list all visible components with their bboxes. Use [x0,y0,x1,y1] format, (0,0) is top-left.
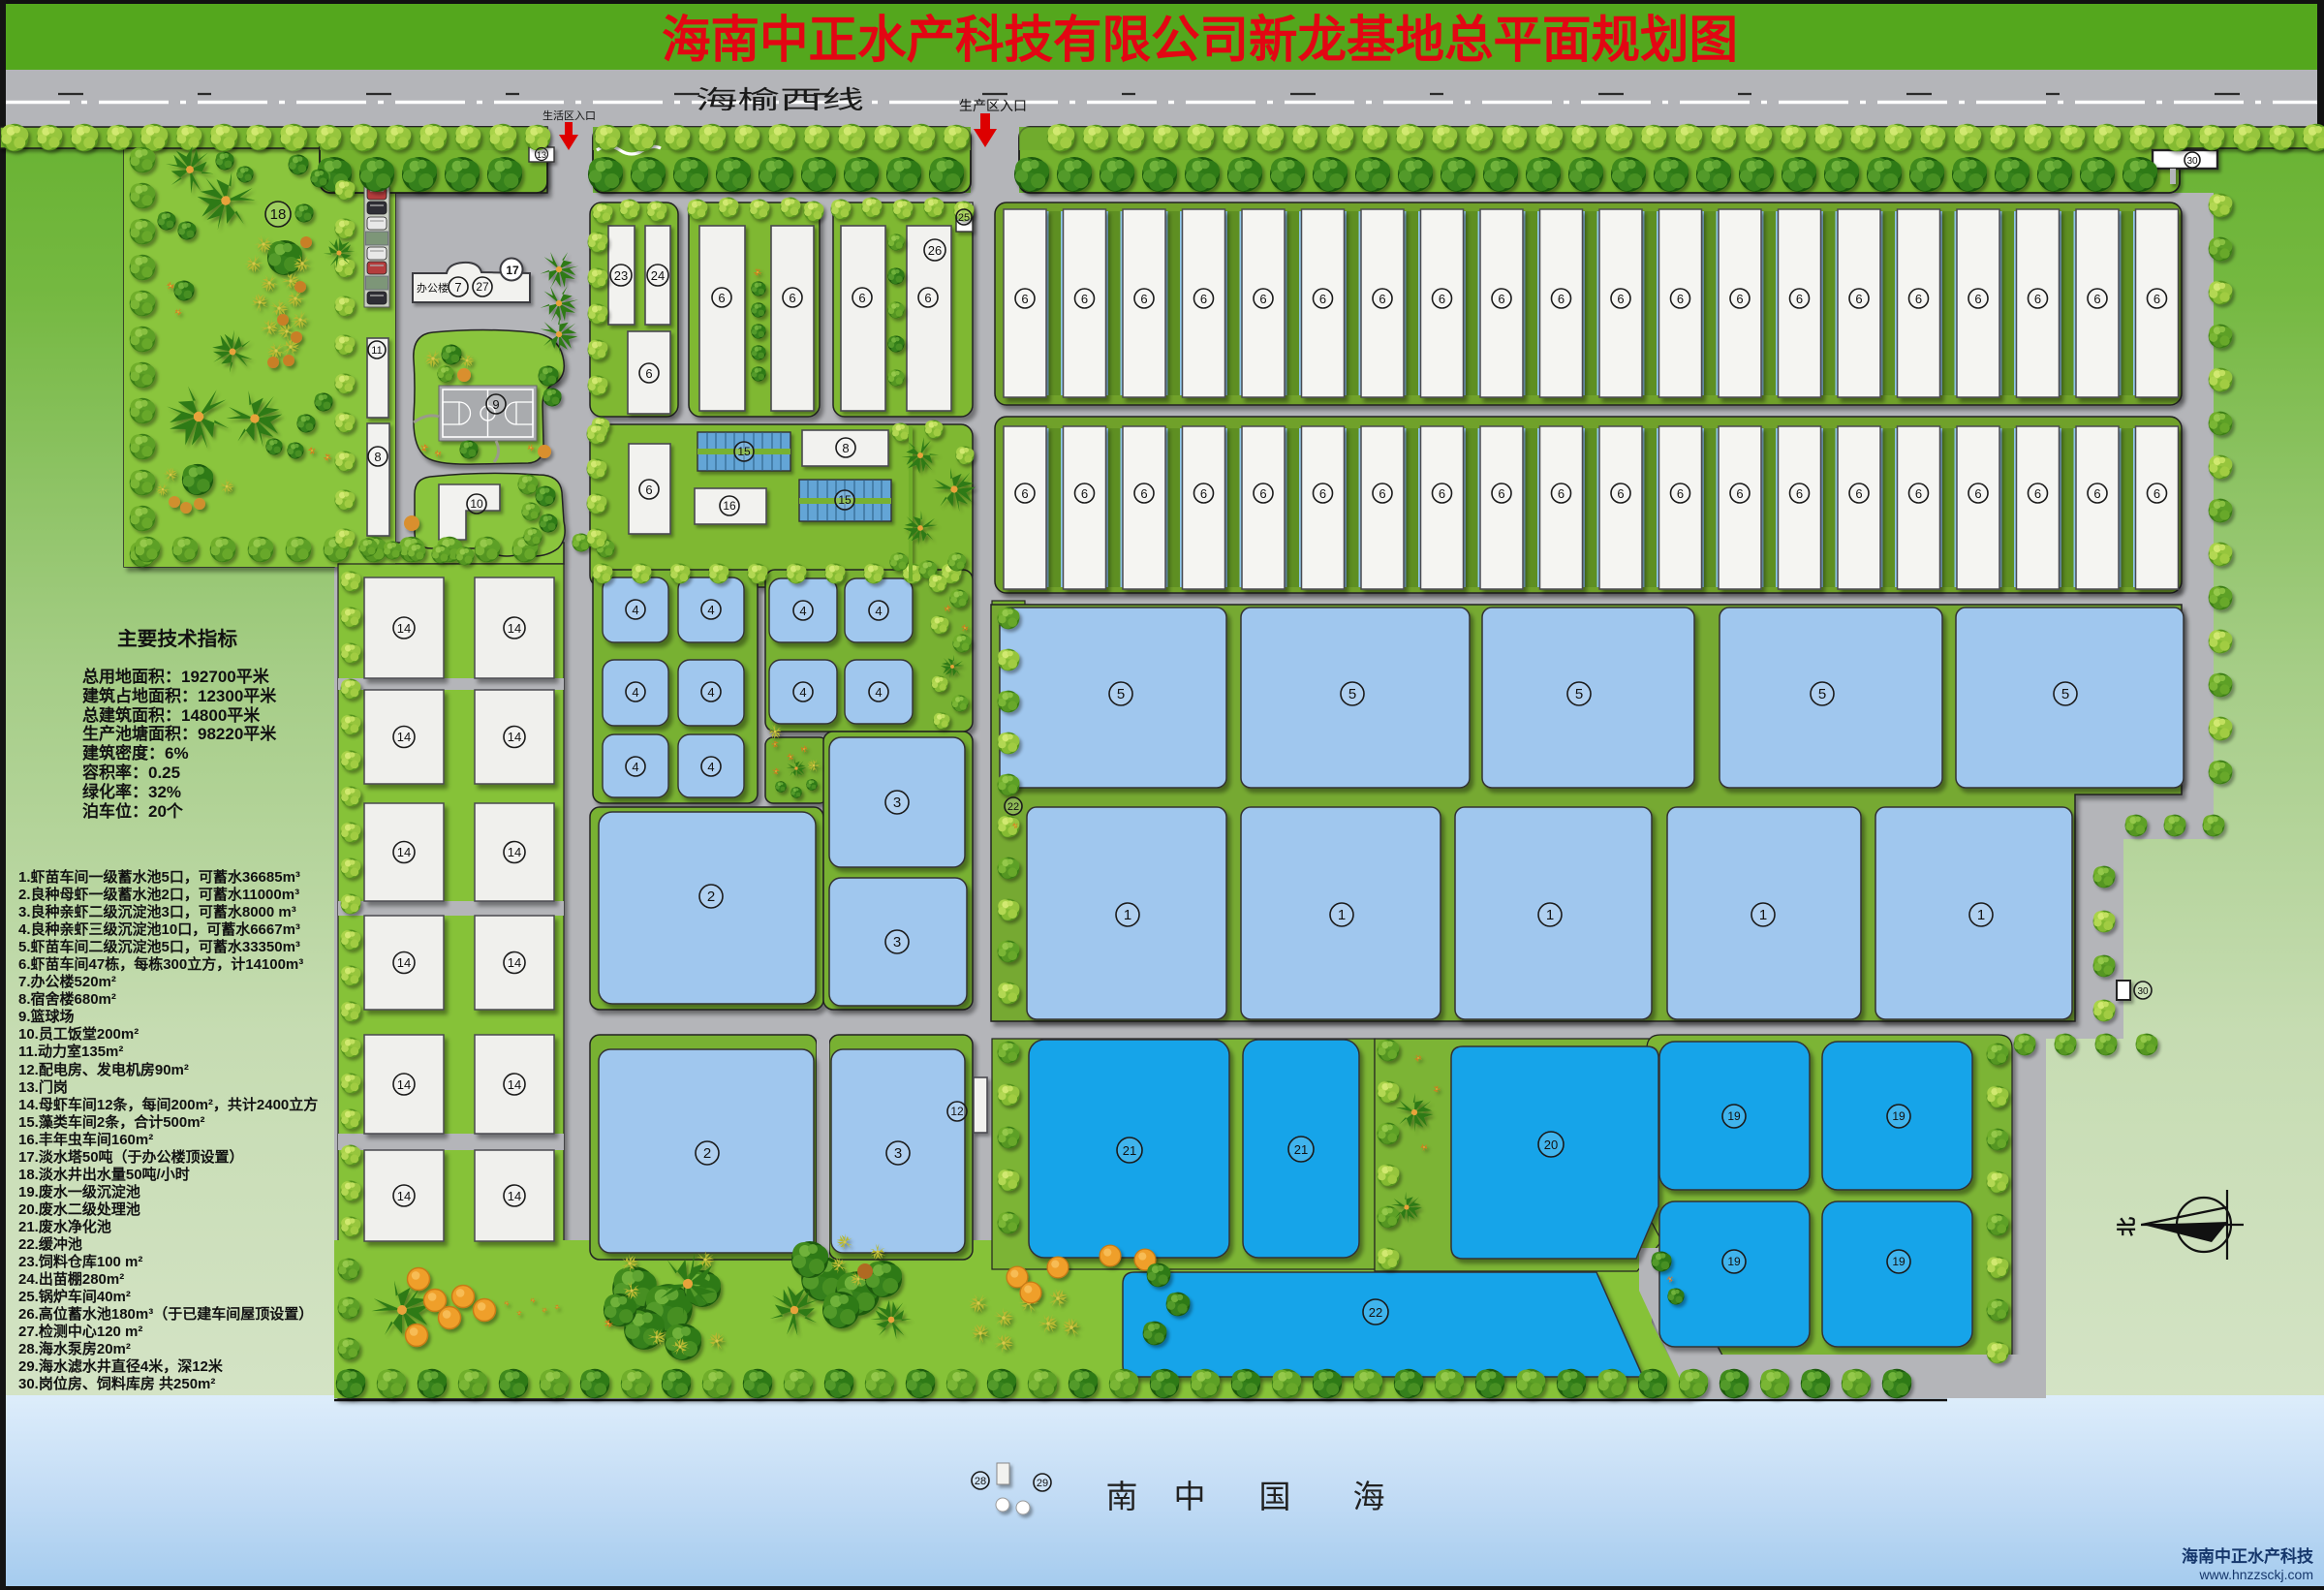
svg-text:绿化率：32%: 绿化率：32% [82,782,181,801]
svg-text:14: 14 [397,730,411,744]
svg-text:23.饲料仓库100 m²: 23.饲料仓库100 m² [18,1253,142,1270]
svg-text:14: 14 [397,955,411,970]
svg-text:6: 6 [1617,486,1624,501]
svg-text:6: 6 [1140,292,1147,306]
svg-text:19: 19 [1727,1109,1741,1123]
svg-text:17.淡水塔50吨（于办公楼顶设置）: 17.淡水塔50吨（于办公楼顶设置） [18,1148,244,1166]
svg-text:3: 3 [894,1145,902,1162]
svg-text:6: 6 [1736,486,1743,501]
svg-text:12: 12 [950,1105,964,1118]
svg-text:主要技术指标: 主要技术指标 [117,627,237,650]
svg-text:泊车位：20个: 泊车位：20个 [82,801,184,821]
svg-text:6: 6 [1379,486,1385,501]
svg-text:6: 6 [1259,486,1266,501]
svg-text:6: 6 [1796,486,1803,501]
svg-text:24.出苗棚280m²: 24.出苗棚280m² [18,1270,124,1288]
svg-text:海南中正水产科技有限公司新龙基地总平面规划图: 海南中正水产科技有限公司新龙基地总平面规划图 [662,13,1738,69]
svg-text:6: 6 [1974,486,1981,501]
svg-text:www.hnzzsckj.com: www.hnzzsckj.com [2199,1567,2313,1582]
svg-text:6: 6 [1021,486,1028,501]
svg-text:19: 19 [1727,1255,1741,1268]
svg-text:19: 19 [1892,1255,1906,1268]
svg-text:21: 21 [1123,1143,1136,1158]
svg-text:8: 8 [842,441,849,455]
svg-text:14.母虾车间12条，每间200m²，共计2400立方: 14.母虾车间12条，每间200m²，共计2400立方 [18,1096,318,1113]
svg-text:6: 6 [1558,486,1565,501]
svg-text:1: 1 [1338,907,1346,923]
svg-text:14: 14 [508,1077,521,1092]
svg-text:13: 13 [537,150,546,160]
svg-text:北: 北 [2116,1217,2138,1236]
svg-text:1: 1 [1546,907,1554,923]
svg-text:1: 1 [1124,907,1131,923]
svg-text:生活区入口: 生活区入口 [542,109,596,122]
svg-text:6: 6 [1439,292,1445,306]
svg-text:建筑占地面积：12300平米: 建筑占地面积：12300平米 [82,686,277,705]
svg-text:6: 6 [1081,292,1088,306]
svg-text:11.动力室135m²: 11.动力室135m² [18,1043,123,1060]
svg-text:15: 15 [838,493,852,507]
svg-text:6: 6 [1319,292,1326,306]
svg-text:17: 17 [506,264,519,277]
svg-text:28.海水泵房20m²: 28.海水泵房20m² [18,1340,131,1357]
svg-text:4: 4 [632,760,638,774]
svg-text:8: 8 [374,450,381,464]
svg-text:6: 6 [1021,292,1028,306]
svg-text:9: 9 [492,397,499,412]
svg-text:6: 6 [1677,486,1684,501]
svg-text:16: 16 [723,499,736,513]
svg-text:15: 15 [737,445,751,458]
svg-text:4: 4 [875,604,882,618]
svg-text:14: 14 [508,955,521,970]
svg-text:6: 6 [1796,292,1803,306]
svg-text:26: 26 [928,243,942,258]
svg-text:14: 14 [397,1189,411,1203]
svg-text:6: 6 [2093,292,2100,306]
svg-text:8.宿舍楼680m²: 8.宿舍楼680m² [18,990,116,1008]
svg-text:6: 6 [1259,292,1266,306]
svg-text:6: 6 [1974,292,1981,306]
svg-text:30: 30 [2186,156,2198,167]
svg-text:总用地面积：192700平米: 总用地面积：192700平米 [82,667,270,686]
svg-text:1: 1 [1977,907,1985,923]
svg-text:6: 6 [2034,486,2041,501]
svg-text:3: 3 [893,934,901,951]
svg-text:28: 28 [975,1476,986,1487]
svg-text:5: 5 [1348,686,1356,702]
svg-text:20.废水二级处理池: 20.废水二级处理池 [18,1200,140,1218]
svg-text:4: 4 [707,760,714,774]
svg-text:25.锅炉车间40m²: 25.锅炉车间40m² [18,1288,131,1305]
svg-text:14: 14 [508,845,521,859]
svg-text:6: 6 [1081,486,1088,501]
svg-text:2: 2 [703,1145,711,1162]
svg-text:23: 23 [614,268,628,283]
svg-text:22: 22 [1007,801,1019,813]
svg-text:4: 4 [799,604,806,618]
svg-text:30: 30 [2137,986,2149,997]
svg-text:6.虾苗车间47栋，每栋300立方，计14100m³: 6.虾苗车间47栋，每栋300立方，计14100m³ [18,955,303,973]
svg-text:30.岗位房、饲料库房 共250m²: 30.岗位房、饲料库房 共250m² [18,1375,215,1392]
svg-text:24: 24 [651,268,665,283]
svg-text:5: 5 [1117,686,1125,702]
svg-text:6: 6 [789,291,795,305]
svg-text:7.办公楼520m²: 7.办公楼520m² [18,973,116,990]
svg-text:4: 4 [707,603,714,617]
svg-text:13.门岗: 13.门岗 [18,1078,68,1096]
svg-text:海: 海 [1353,1479,1385,1514]
svg-text:6: 6 [1439,486,1445,501]
svg-text:11: 11 [371,345,382,357]
svg-text:7: 7 [454,280,461,295]
svg-text:6: 6 [2093,486,2100,501]
svg-text:14: 14 [508,1189,521,1203]
svg-text:4: 4 [875,685,882,700]
svg-text:生产区入口: 生产区入口 [959,98,1027,113]
svg-text:14: 14 [397,621,411,636]
svg-text:10: 10 [470,497,483,511]
svg-text:2.良种母虾一级蓄水池2口，可蓄水11000m³: 2.良种母虾一级蓄水池2口，可蓄水11000m³ [18,886,299,903]
svg-text:14: 14 [397,1077,411,1092]
svg-text:6: 6 [1558,292,1565,306]
svg-text:9.篮球场: 9.篮球场 [18,1008,75,1025]
svg-text:1.虾苗车间一级蓄水池5口，可蓄水36685m³: 1.虾苗车间一级蓄水池5口，可蓄水36685m³ [18,868,300,886]
svg-text:27.检测中心120 m²: 27.检测中心120 m² [18,1323,142,1340]
svg-text:6: 6 [2034,292,2041,306]
svg-text:27: 27 [476,280,489,294]
svg-text:6: 6 [1915,486,1922,501]
svg-text:29.海水滤水井直径4米，深12米: 29.海水滤水井直径4米，深12米 [18,1357,224,1375]
svg-text:6: 6 [645,366,652,381]
svg-text:5: 5 [1818,686,1826,702]
svg-text:总建筑面积：14800平米: 总建筑面积：14800平米 [82,705,261,725]
svg-text:南: 南 [1106,1479,1138,1514]
svg-text:5: 5 [1575,686,1583,702]
svg-text:1: 1 [1759,907,1767,923]
svg-text:3: 3 [893,795,901,811]
svg-text:15.藻类车间2条，合计500m²: 15.藻类车间2条，合计500m² [18,1113,205,1131]
svg-text:18.淡水井出水量50吨/小时: 18.淡水井出水量50吨/小时 [18,1166,190,1183]
svg-text:6: 6 [1498,486,1504,501]
svg-text:6: 6 [1915,292,1922,306]
svg-text:6: 6 [924,291,931,305]
svg-text:6: 6 [1736,292,1743,306]
svg-text:21: 21 [1294,1142,1308,1157]
svg-text:12.配电房、发电机房90m²: 12.配电房、发电机房90m² [18,1061,189,1078]
svg-text:16.丰年虫车间160m²: 16.丰年虫车间160m² [18,1131,153,1148]
svg-text:2: 2 [707,889,715,905]
svg-text:中: 中 [1174,1479,1206,1514]
svg-text:6: 6 [718,291,725,305]
svg-text:4: 4 [799,685,806,700]
svg-text:6: 6 [2154,486,2160,501]
svg-text:22: 22 [1369,1305,1382,1320]
svg-text:建筑密度：6%: 建筑密度：6% [82,743,189,763]
svg-text:4: 4 [707,685,714,700]
svg-text:10.员工饭堂200m²: 10.员工饭堂200m² [18,1025,139,1043]
svg-text:国: 国 [1259,1479,1291,1514]
svg-text:6: 6 [1140,486,1147,501]
svg-text:6: 6 [858,291,865,305]
svg-text:6: 6 [1677,292,1684,306]
svg-text:6: 6 [2154,292,2160,306]
svg-text:海南中正水产科技: 海南中正水产科技 [2182,1546,2314,1566]
svg-text:19.废水一级沉淀池: 19.废水一级沉淀池 [18,1183,140,1200]
svg-text:26.高位蓄水池180m³（于已建车间屋顶设置）: 26.高位蓄水池180m³（于已建车间屋顶设置） [18,1305,313,1323]
svg-text:5.虾苗车间二级沉淀池5口，可蓄水33350m³: 5.虾苗车间二级沉淀池5口，可蓄水33350m³ [18,938,300,955]
svg-text:4: 4 [632,685,638,700]
svg-text:21.废水净化池: 21.废水净化池 [18,1218,111,1235]
svg-text:6: 6 [1498,292,1504,306]
svg-text:14: 14 [508,621,521,636]
svg-text:容积率：0.25: 容积率：0.25 [82,763,180,782]
svg-text:6: 6 [1855,486,1862,501]
svg-text:4.良种亲虾三级沉淀池10口，可蓄水6667m³: 4.良种亲虾三级沉淀池10口，可蓄水6667m³ [18,920,300,938]
svg-text:6: 6 [1379,292,1385,306]
svg-text:生产池塘面积：98220平米: 生产池塘面积：98220平米 [82,724,277,743]
svg-text:5: 5 [2061,686,2069,702]
svg-text:6: 6 [1200,292,1207,306]
svg-text:6: 6 [1855,292,1862,306]
svg-text:3.良种亲虾二级沉淀池3口，可蓄水8000 m³: 3.良种亲虾二级沉淀池3口，可蓄水8000 m³ [18,903,296,920]
svg-text:海榆西线: 海榆西线 [696,85,864,114]
svg-text:19: 19 [1892,1109,1906,1123]
svg-text:25: 25 [958,212,970,224]
svg-text:6: 6 [1617,292,1624,306]
svg-text:18: 18 [270,206,287,223]
svg-text:14: 14 [508,730,521,744]
svg-text:22.缓冲池: 22.缓冲池 [18,1235,82,1253]
svg-text:办公楼: 办公楼 [417,281,449,295]
svg-text:29: 29 [1037,1478,1048,1489]
svg-text:6: 6 [1200,486,1207,501]
svg-text:6: 6 [1319,486,1326,501]
svg-text:6: 6 [645,483,652,497]
svg-text:4: 4 [632,603,638,617]
svg-text:14: 14 [397,845,411,859]
svg-text:20: 20 [1544,1138,1558,1152]
